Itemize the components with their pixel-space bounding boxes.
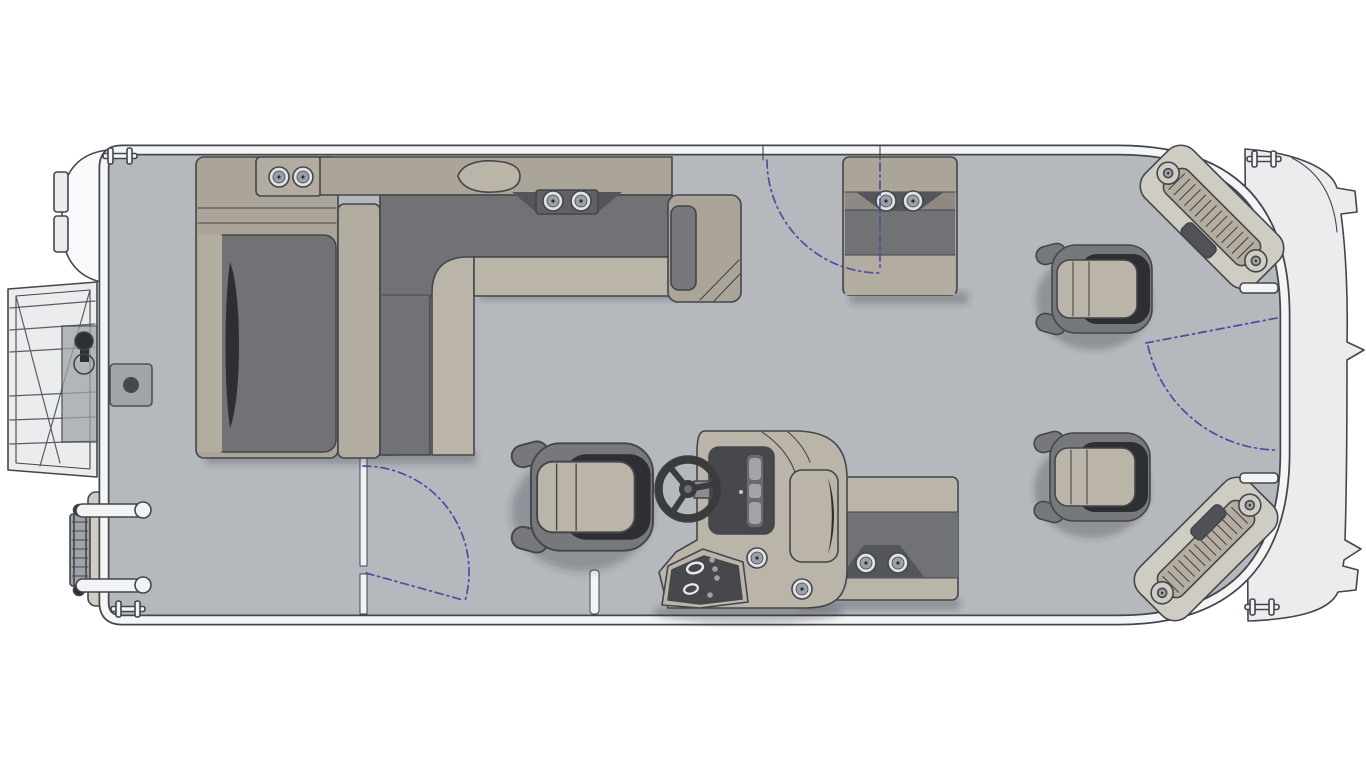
aft-partition-fixed [360, 574, 367, 614]
motor-bracket-lower [54, 216, 68, 252]
cup-holder [293, 167, 313, 187]
bow-gate-stop-upper [1240, 283, 1278, 293]
cup-holder [903, 191, 923, 211]
port-bow-bench [843, 157, 968, 304]
aft-facing-lounge [196, 157, 338, 458]
fuel-cap [123, 377, 139, 393]
armrest-end-cap [668, 195, 741, 302]
cup-holder [856, 553, 876, 573]
cup-holder [876, 191, 896, 211]
l-seat-cushion [474, 257, 672, 296]
cup-holder [888, 553, 908, 573]
trim-contour [458, 161, 520, 192]
aft-partition-gate [360, 458, 367, 566]
pontoon-floorplan [0, 0, 1366, 768]
side-pod [790, 470, 838, 562]
corner-cup-console [256, 157, 322, 196]
cup-holder [269, 167, 289, 187]
cup-holder [747, 548, 767, 568]
cup-holder [792, 579, 812, 599]
motor-bracket-upper [54, 172, 68, 212]
cup-holder [571, 191, 591, 211]
bow-chair-lower [1032, 429, 1150, 538]
cup-holder [543, 191, 563, 211]
stern-exterior [8, 150, 110, 606]
captain-chair [509, 439, 653, 571]
pontoon-floorplan-canvas [0, 0, 1366, 768]
l-seat-corner-pad [432, 257, 474, 455]
bow-gate-stop-lower [1240, 473, 1278, 483]
fence-post-bottom [590, 570, 599, 614]
bow-chair-upper [1034, 241, 1152, 350]
